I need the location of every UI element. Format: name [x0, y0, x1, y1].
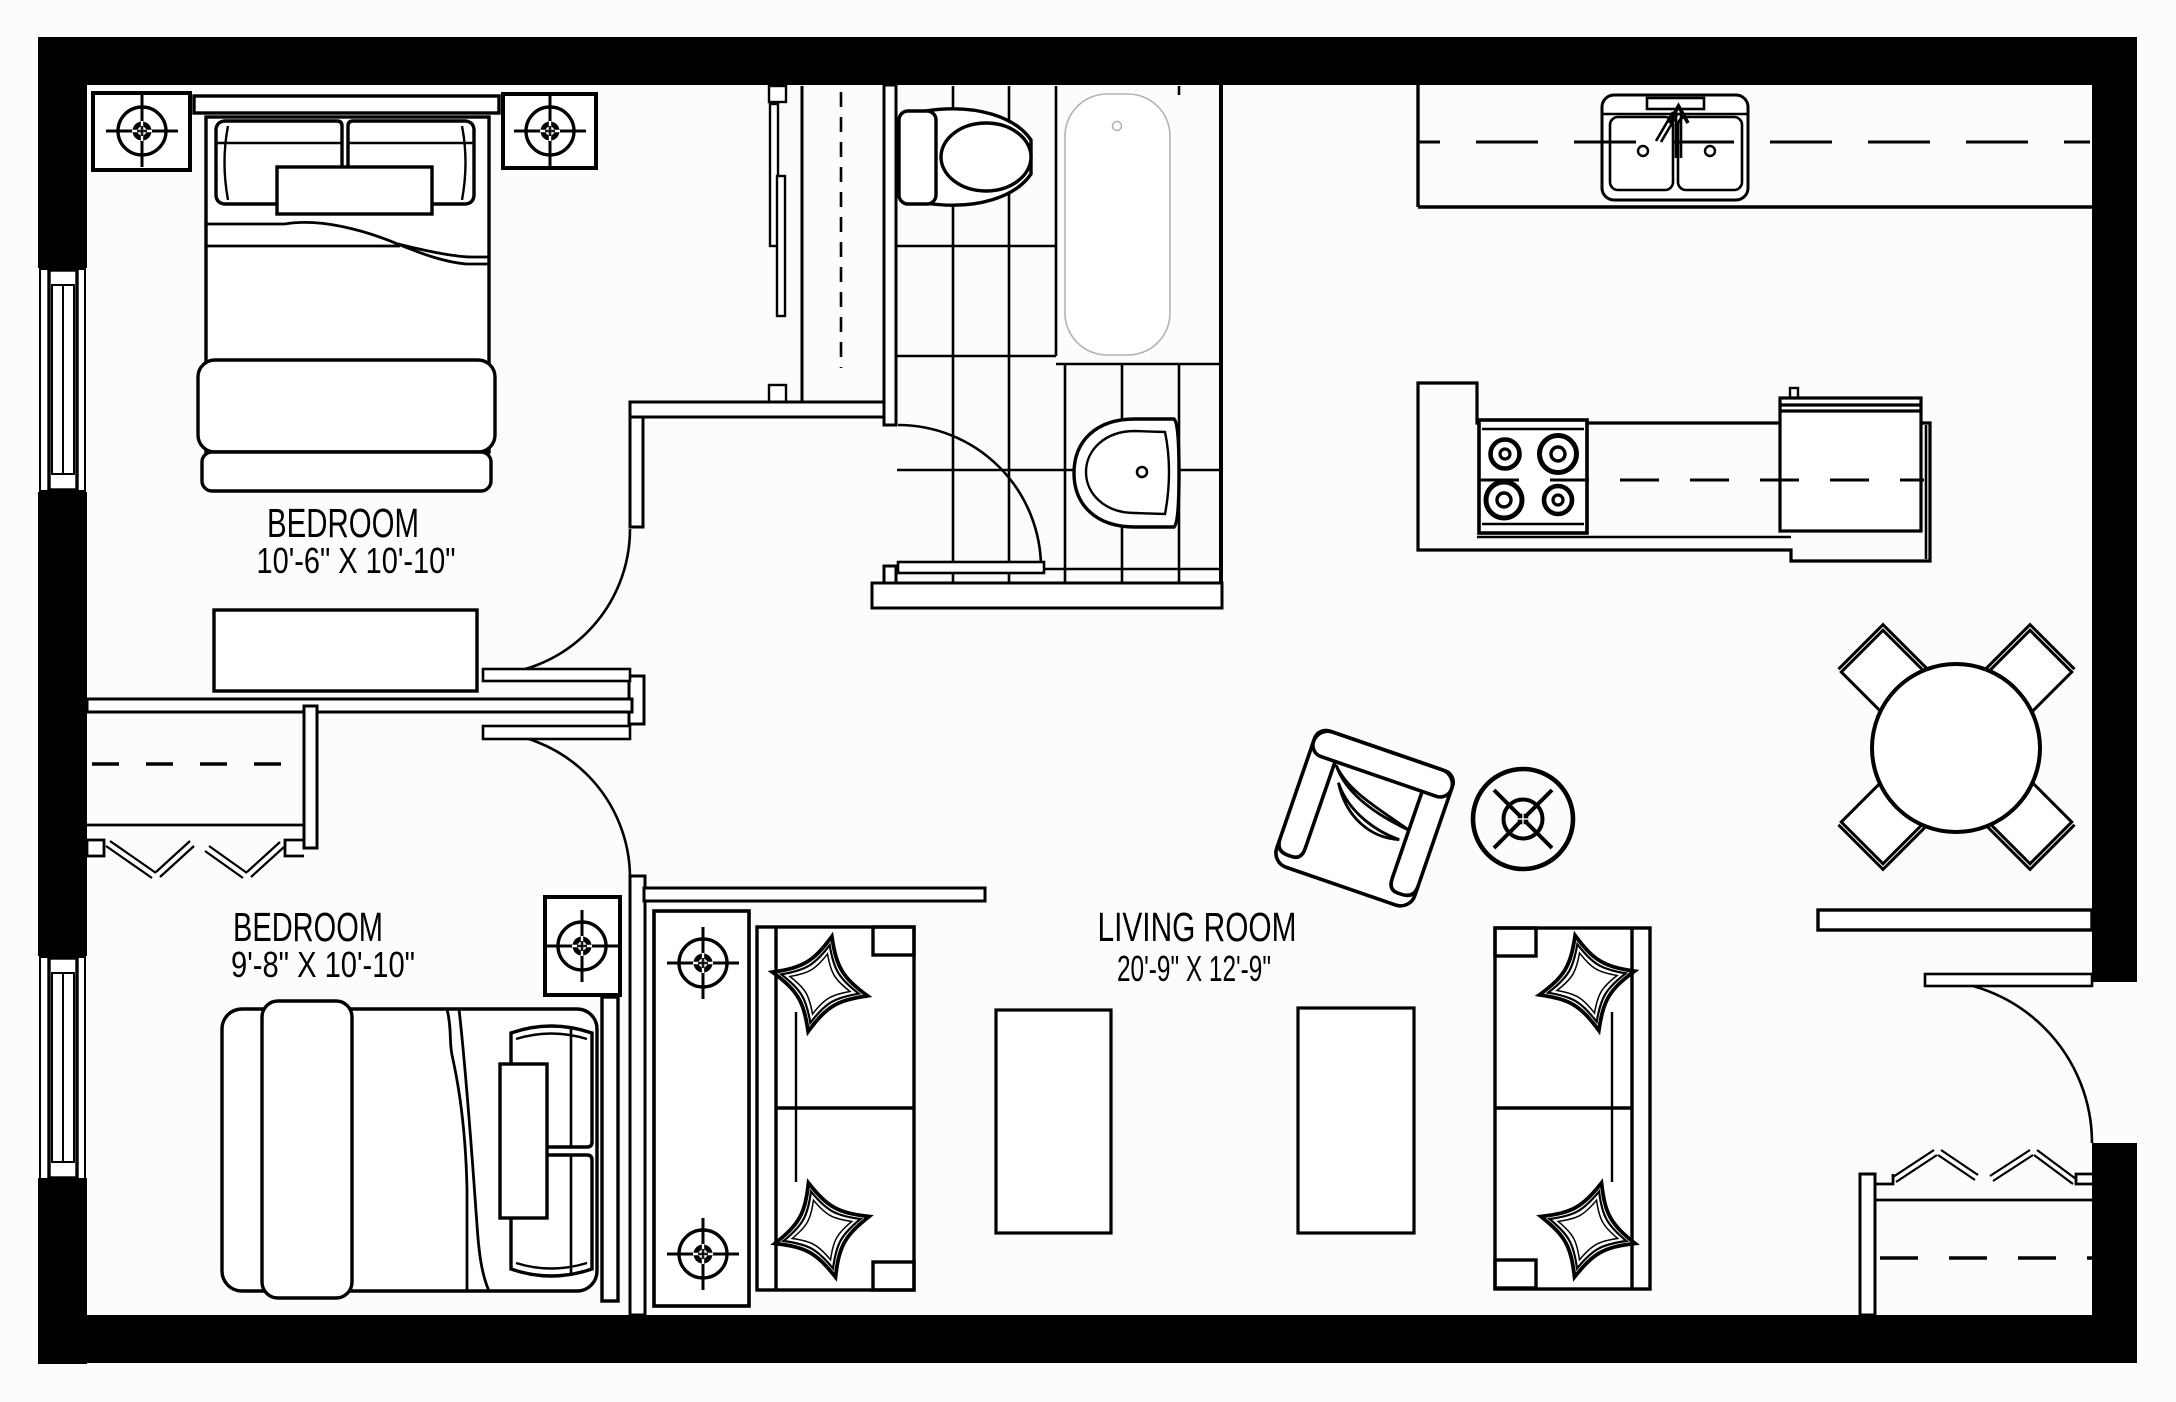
- svg-text:10'-6" X 10'-10": 10'-6" X 10'-10": [257, 540, 456, 581]
- svg-text:9'-8" X 10'-10": 9'-8" X 10'-10": [231, 944, 415, 985]
- svg-text:20'-9" X 12'-9": 20'-9" X 12'-9": [1117, 948, 1271, 989]
- svg-text:LIVING ROOM: LIVING ROOM: [1098, 904, 1297, 950]
